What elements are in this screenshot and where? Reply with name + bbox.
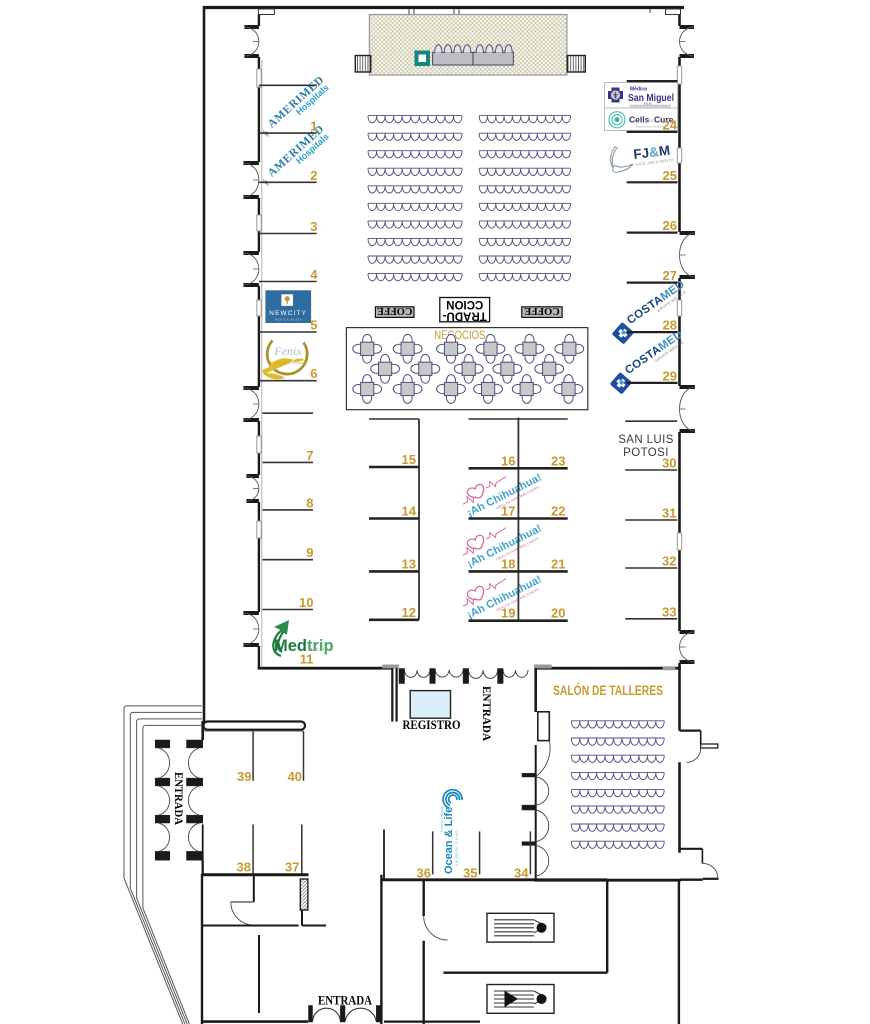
- svg-text:4: 4: [310, 267, 318, 282]
- svg-text:30: 30: [662, 456, 676, 471]
- svg-text:22: 22: [551, 504, 565, 519]
- svg-text:14: 14: [402, 504, 417, 519]
- svg-text:Fenix: Fenix: [273, 344, 302, 358]
- svg-text:26: 26: [663, 218, 677, 233]
- svg-text:M E D I C A L P L A Z A: M E D I C A L P L A Z A: [275, 317, 302, 321]
- svg-text:27: 27: [663, 268, 677, 283]
- svg-text:32: 32: [662, 554, 676, 569]
- svg-text:6: 6: [310, 366, 317, 381]
- svg-text:Cells: Cells: [629, 115, 650, 125]
- svg-text:37: 37: [285, 860, 299, 875]
- svg-text:39: 39: [237, 769, 251, 784]
- svg-text:Puerto Vallarta: Puerto Vallarta: [439, 805, 444, 832]
- svg-text:CCION: CCION: [446, 298, 483, 310]
- svg-text:19: 19: [501, 606, 515, 621]
- svg-text:10: 10: [299, 595, 313, 610]
- svg-text:28: 28: [663, 318, 677, 333]
- svg-text:2: 2: [310, 168, 317, 183]
- svg-text:3: 3: [310, 219, 317, 234]
- svg-text:8: 8: [306, 495, 313, 510]
- svg-text:SAN LUIS: SAN LUIS: [618, 434, 674, 446]
- svg-text:15: 15: [402, 452, 416, 467]
- svg-text:ENTRADA: ENTRADA: [480, 686, 492, 742]
- svg-text:7: 7: [306, 448, 313, 463]
- svg-text:35: 35: [463, 866, 477, 881]
- svg-text:5: 5: [310, 318, 317, 333]
- svg-text:ENTRADA: ENTRADA: [318, 993, 373, 1008]
- svg-text:24: 24: [663, 117, 678, 132]
- svg-text:33: 33: [662, 604, 676, 619]
- svg-text:13: 13: [402, 556, 416, 571]
- svg-text:SALÓN DE TALLERES: SALÓN DE TALLERES: [553, 683, 663, 698]
- svg-text:29: 29: [663, 368, 677, 383]
- svg-text:COFFE: COFFE: [524, 305, 560, 316]
- svg-text:21: 21: [551, 556, 565, 571]
- svg-text:Regenerative Medicine: Regenerative Medicine: [636, 124, 665, 128]
- svg-text:COFFE: COFFE: [377, 305, 413, 316]
- svg-text:40: 40: [288, 769, 302, 784]
- svg-text:Médica: Médica: [630, 87, 647, 93]
- svg-text:Health and Wellness: Health and Wellness: [268, 360, 307, 365]
- svg-text:MEXICO: MEXICO: [311, 647, 334, 652]
- svg-text:17: 17: [501, 504, 515, 519]
- svg-text:TRADU-: TRADU-: [442, 310, 486, 322]
- svg-text:11: 11: [300, 652, 314, 667]
- svg-text:NEWCITY: NEWCITY: [269, 310, 307, 317]
- svg-text:REGISTRO: REGISTRO: [403, 718, 461, 732]
- svg-text:12: 12: [402, 605, 416, 620]
- svg-text:36: 36: [417, 866, 431, 881]
- svg-text:NEGOCIOS: NEGOCIOS: [434, 330, 485, 342]
- svg-text:34: 34: [514, 866, 529, 881]
- svg-text:16: 16: [501, 453, 515, 468]
- svg-text:25: 25: [663, 168, 677, 183]
- svg-text:ENTRADA: ENTRADA: [172, 772, 184, 826]
- svg-text:20: 20: [551, 606, 565, 621]
- svg-text:23: 23: [551, 453, 565, 468]
- svg-text:vacation travel: vacation travel: [454, 830, 459, 866]
- svg-text:38: 38: [237, 860, 251, 875]
- svg-text:31: 31: [662, 506, 676, 521]
- svg-text:9: 9: [306, 545, 313, 560]
- svg-text:1: 1: [310, 119, 317, 134]
- svg-text:18: 18: [501, 556, 515, 571]
